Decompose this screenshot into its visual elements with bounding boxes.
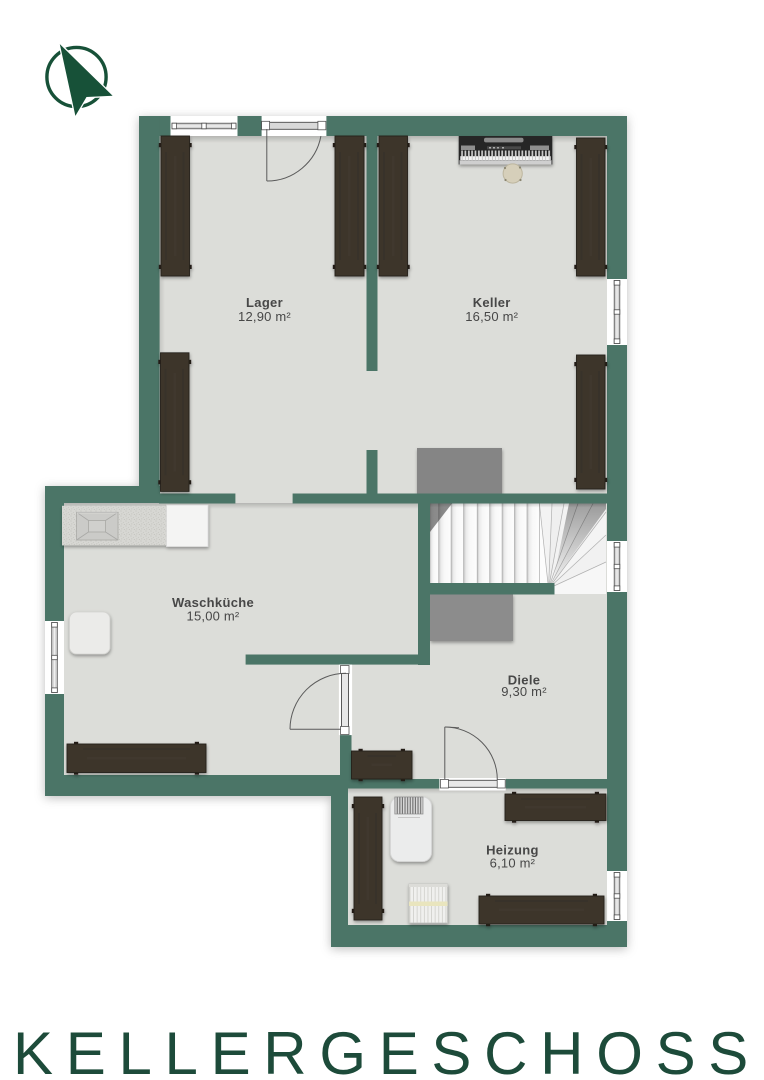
svg-text:Lager: Lager [246, 295, 283, 310]
svg-text:16,50 m²: 16,50 m² [465, 309, 518, 324]
svg-text:Keller: Keller [473, 295, 511, 310]
svg-text:12,90 m²: 12,90 m² [238, 309, 291, 324]
svg-text:15,00 m²: 15,00 m² [187, 609, 240, 624]
svg-text:6,10 m²: 6,10 m² [490, 855, 536, 870]
svg-text:9,30 m²: 9,30 m² [501, 684, 547, 699]
svg-text:KELLERGESCHOSS: KELLERGESCHOSS [13, 1020, 761, 1080]
